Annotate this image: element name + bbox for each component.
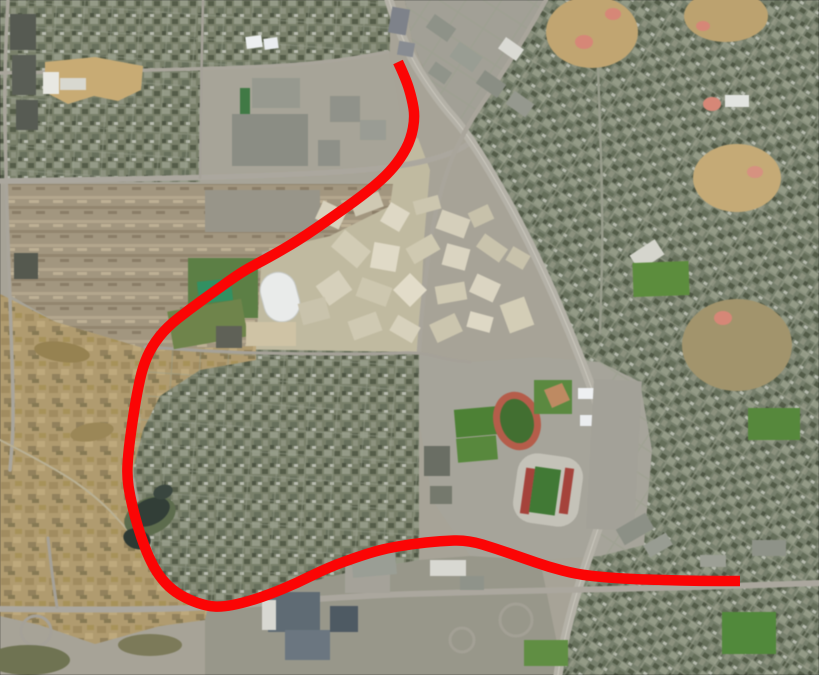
green-roof-strip xyxy=(240,88,250,114)
nw-apartment-row xyxy=(16,100,38,130)
green-field xyxy=(748,408,800,440)
green-field xyxy=(524,640,568,666)
white-tent-roof xyxy=(245,35,263,49)
campus-parking-lot xyxy=(205,190,320,232)
white-tent-roof xyxy=(263,37,278,50)
office-building xyxy=(752,540,786,556)
stadium-parking xyxy=(586,379,642,531)
highrise-roof xyxy=(397,41,415,58)
campus-building xyxy=(370,242,400,272)
soccer-field xyxy=(454,406,498,438)
residence-hall xyxy=(246,322,296,346)
research-building xyxy=(360,120,386,140)
nw-apartment-row xyxy=(10,14,36,50)
residence-hall-dark xyxy=(216,326,242,348)
tan-park xyxy=(693,144,781,212)
nw-apartment-row xyxy=(12,55,36,95)
green-field xyxy=(722,612,776,654)
ball-diamond-marker xyxy=(605,8,621,20)
satellite-canvas[interactable] xyxy=(0,0,819,675)
research-building xyxy=(252,78,300,108)
open-scrub-area xyxy=(682,299,792,391)
research-big-roof xyxy=(232,114,308,166)
research-building xyxy=(330,96,360,122)
ball-diamond-marker xyxy=(747,166,763,178)
south-building xyxy=(330,606,358,632)
apartment-block xyxy=(430,486,452,504)
ball-diamond-marker xyxy=(703,97,721,111)
ball-diamond-marker xyxy=(575,35,593,49)
school-green-field xyxy=(632,261,689,297)
apartment-block xyxy=(424,446,450,476)
satellite-map-view[interactable] xyxy=(0,0,819,675)
nw-apartment-row xyxy=(14,253,38,279)
ball-diamond-marker xyxy=(696,21,710,31)
office-building xyxy=(700,555,726,567)
office-building xyxy=(430,560,466,576)
nw-white-building xyxy=(43,72,59,94)
south-mall-white-edge xyxy=(262,600,276,630)
south-mall-roof xyxy=(285,630,330,660)
research-building xyxy=(318,140,340,166)
ball-diamond-marker xyxy=(714,311,732,325)
tree-cluster xyxy=(118,634,182,656)
nw-mall-building xyxy=(60,78,86,90)
soccer-field xyxy=(456,435,498,462)
office-building xyxy=(460,576,484,590)
white-school-roof xyxy=(725,95,749,107)
